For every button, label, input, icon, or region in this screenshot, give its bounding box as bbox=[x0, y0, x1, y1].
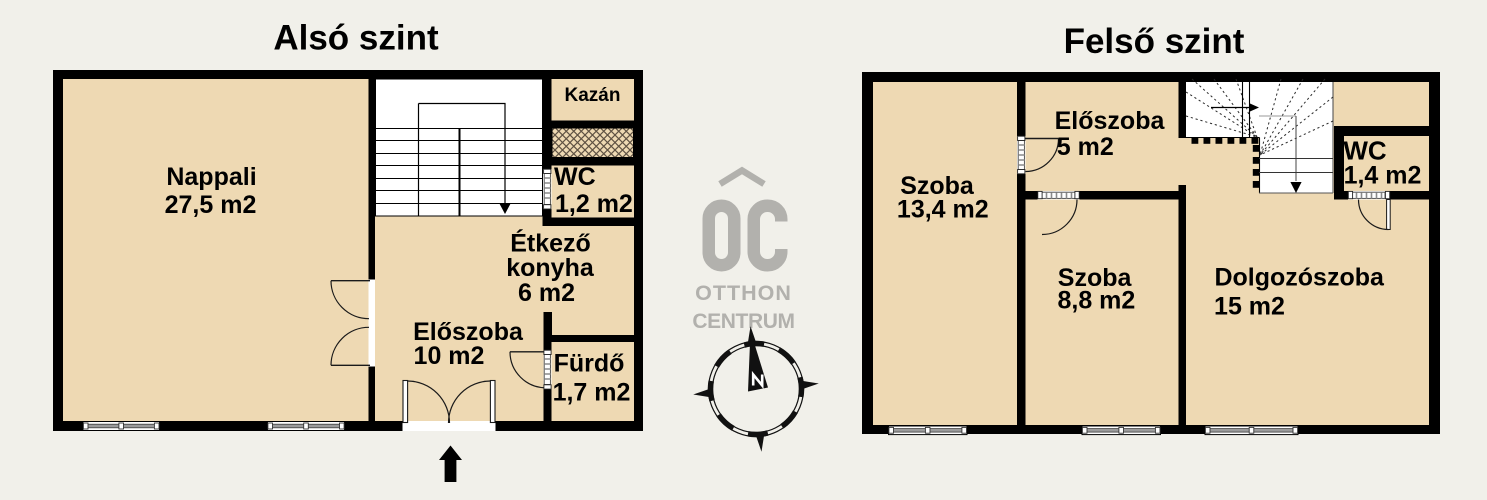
svg-text:5 m2: 5 m2 bbox=[1057, 133, 1114, 161]
svg-text:1,2 m2: 1,2 m2 bbox=[555, 190, 633, 218]
svg-text:Fürdő: Fürdő bbox=[554, 350, 625, 378]
svg-text:27,5 m2: 27,5 m2 bbox=[165, 191, 257, 219]
svg-text:13,4 m2: 13,4 m2 bbox=[897, 196, 989, 224]
svg-text:1,7 m2: 1,7 m2 bbox=[553, 379, 631, 407]
svg-text:1,4 m2: 1,4 m2 bbox=[1344, 162, 1422, 190]
svg-text:15 m2: 15 m2 bbox=[1214, 293, 1285, 321]
svg-text:Felső szint: Felső szint bbox=[1064, 22, 1245, 61]
svg-text:WC: WC bbox=[554, 163, 596, 191]
svg-text:Alsó szint: Alsó szint bbox=[273, 19, 439, 58]
svg-text:10 m2: 10 m2 bbox=[414, 342, 485, 370]
svg-text:8,8 m2: 8,8 m2 bbox=[1057, 287, 1135, 315]
svg-text:Nappali: Nappali bbox=[166, 163, 256, 191]
svg-text:CENTRUM: CENTRUM bbox=[692, 310, 794, 333]
svg-text:OTTHON: OTTHON bbox=[695, 281, 792, 305]
svg-text:konyha: konyha bbox=[506, 254, 595, 282]
svg-text:Dolgozószoba: Dolgozószoba bbox=[1214, 264, 1385, 292]
svg-text:Előszoba: Előszoba bbox=[1055, 107, 1166, 135]
svg-text:6 m2: 6 m2 bbox=[518, 279, 575, 307]
svg-text:Kazán: Kazán bbox=[565, 85, 621, 106]
